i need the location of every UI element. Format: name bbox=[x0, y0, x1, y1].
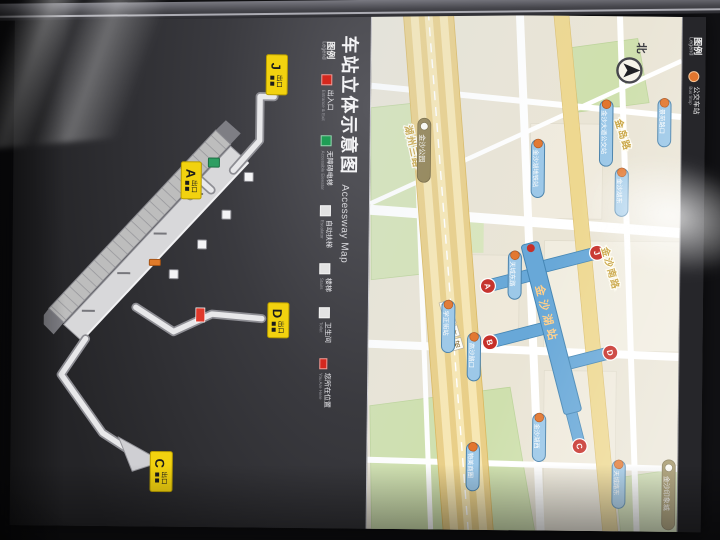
compass-north-label: 北 bbox=[635, 42, 649, 53]
map-legend-busstop-item: 公交车站 Bus Stop bbox=[688, 71, 700, 114]
rotated-board: 图例 Legend 公交车站 Bus Stop bbox=[16, 10, 706, 525]
svg-text:出口: 出口 bbox=[277, 321, 286, 334]
exit-badge-D: D 出口 bbox=[268, 303, 289, 338]
bus-stop-label-zh: 公交车站 bbox=[692, 86, 699, 114]
bus-stop-pill: 高沙路口 bbox=[467, 332, 481, 381]
page-title-en: Accessway Map bbox=[338, 184, 350, 263]
landmark-pill: 金沙印象城 bbox=[662, 460, 676, 530]
facility-icon bbox=[169, 270, 178, 279]
svg-text:出口: 出口 bbox=[160, 472, 169, 485]
facility-icon bbox=[222, 210, 231, 219]
exit-badge-C: C 出口 bbox=[150, 451, 172, 491]
svg-text:A: A bbox=[183, 169, 198, 179]
svg-text:J: J bbox=[268, 63, 283, 70]
svg-text:出口: 出口 bbox=[275, 75, 284, 88]
toilet-icon bbox=[319, 307, 330, 318]
legend-item-stairs: 楼梯Stairs bbox=[319, 263, 331, 292]
station-sign-board: 图例 Legend 公交车站 Bus Stop bbox=[11, 10, 706, 532]
platform-level bbox=[49, 128, 231, 324]
bus-stop-label-en: Bus Stop bbox=[688, 86, 693, 114]
diagram-legend: 图例 Legend 出入口Entrance & Exit 无障碍电梯Access… bbox=[316, 41, 334, 408]
landmark-pill: 金沙公园 bbox=[417, 118, 431, 182]
street-map-svg: 金沙湖站 J A B D C bbox=[367, 14, 682, 532]
legend-header-en: Legend bbox=[320, 41, 326, 59]
legend-header-zh: 图例 bbox=[325, 41, 334, 59]
bus-stop-pill: 金沙湖地铁站 bbox=[531, 139, 545, 198]
legend-item-escalator: 自动扶梯Escalator bbox=[319, 205, 332, 248]
elevator-icon bbox=[208, 158, 219, 167]
bus-stop-pill: 天城路东 bbox=[612, 460, 626, 509]
exit-badge-A: A 出口 bbox=[181, 162, 201, 199]
exit-badge-J: J 出口 bbox=[266, 55, 287, 95]
facility-icon bbox=[198, 240, 207, 249]
legend-item-toilet: 卫生间Toilet bbox=[318, 307, 330, 343]
you-are-here-icon bbox=[319, 358, 327, 369]
title-row: 车站立体示意图 Accessway Map bbox=[335, 35, 363, 263]
svg-text:D: D bbox=[270, 309, 285, 319]
street-map: 金沙湖站 J A B D C bbox=[367, 14, 682, 532]
legend-item-elevator: 无障碍电梯Accessible Elevator bbox=[320, 136, 333, 190]
station-3d-diagram: J 出口 A 出口 D 出口 bbox=[42, 10, 307, 528]
svg-text:出口: 出口 bbox=[190, 180, 199, 193]
bus-stop-pill: 金沙大道公交站 bbox=[599, 100, 613, 167]
bus-stop-pill: 金沙湖西 bbox=[532, 413, 546, 462]
bus-stop-icon bbox=[688, 71, 699, 82]
map-legend-header-en: Legend bbox=[687, 37, 693, 55]
entrance-icon bbox=[321, 75, 332, 86]
photo-of-station-signboard: 图例 Legend 公交车站 Bus Stop bbox=[0, 0, 720, 540]
legend-item-entrance: 出入口Entrance & Exit bbox=[321, 75, 334, 121]
svg-text:C: C bbox=[152, 458, 167, 468]
legend-item-you-are-here: 您所在位置You Are Here bbox=[318, 358, 331, 408]
you-are-here-marker bbox=[196, 308, 205, 322]
escalator-icon-small bbox=[149, 259, 160, 265]
accessible-elevator-icon bbox=[321, 136, 332, 147]
bus-stop-pill: 物美商圈 bbox=[466, 442, 480, 491]
bus-stop-pill: 天城东路 bbox=[508, 251, 522, 300]
diagram-panel: 车站立体示意图 Accessway Map 图例 Legend 出入口Entra… bbox=[10, 10, 372, 529]
page-title: 车站立体示意图 bbox=[336, 35, 363, 175]
map-legend-header-zh: 图例 bbox=[692, 37, 701, 55]
bus-stop-pill: 景苑路口 bbox=[658, 98, 672, 147]
map-legend-header: 图例 Legend bbox=[687, 37, 702, 56]
escalator-icon bbox=[320, 205, 331, 216]
facility-icon bbox=[244, 172, 253, 181]
stairs-icon bbox=[320, 263, 331, 274]
bus-stop-pill: 学正街站 bbox=[441, 300, 455, 353]
bus-stop-pill: 金沙湖东 bbox=[615, 168, 629, 217]
